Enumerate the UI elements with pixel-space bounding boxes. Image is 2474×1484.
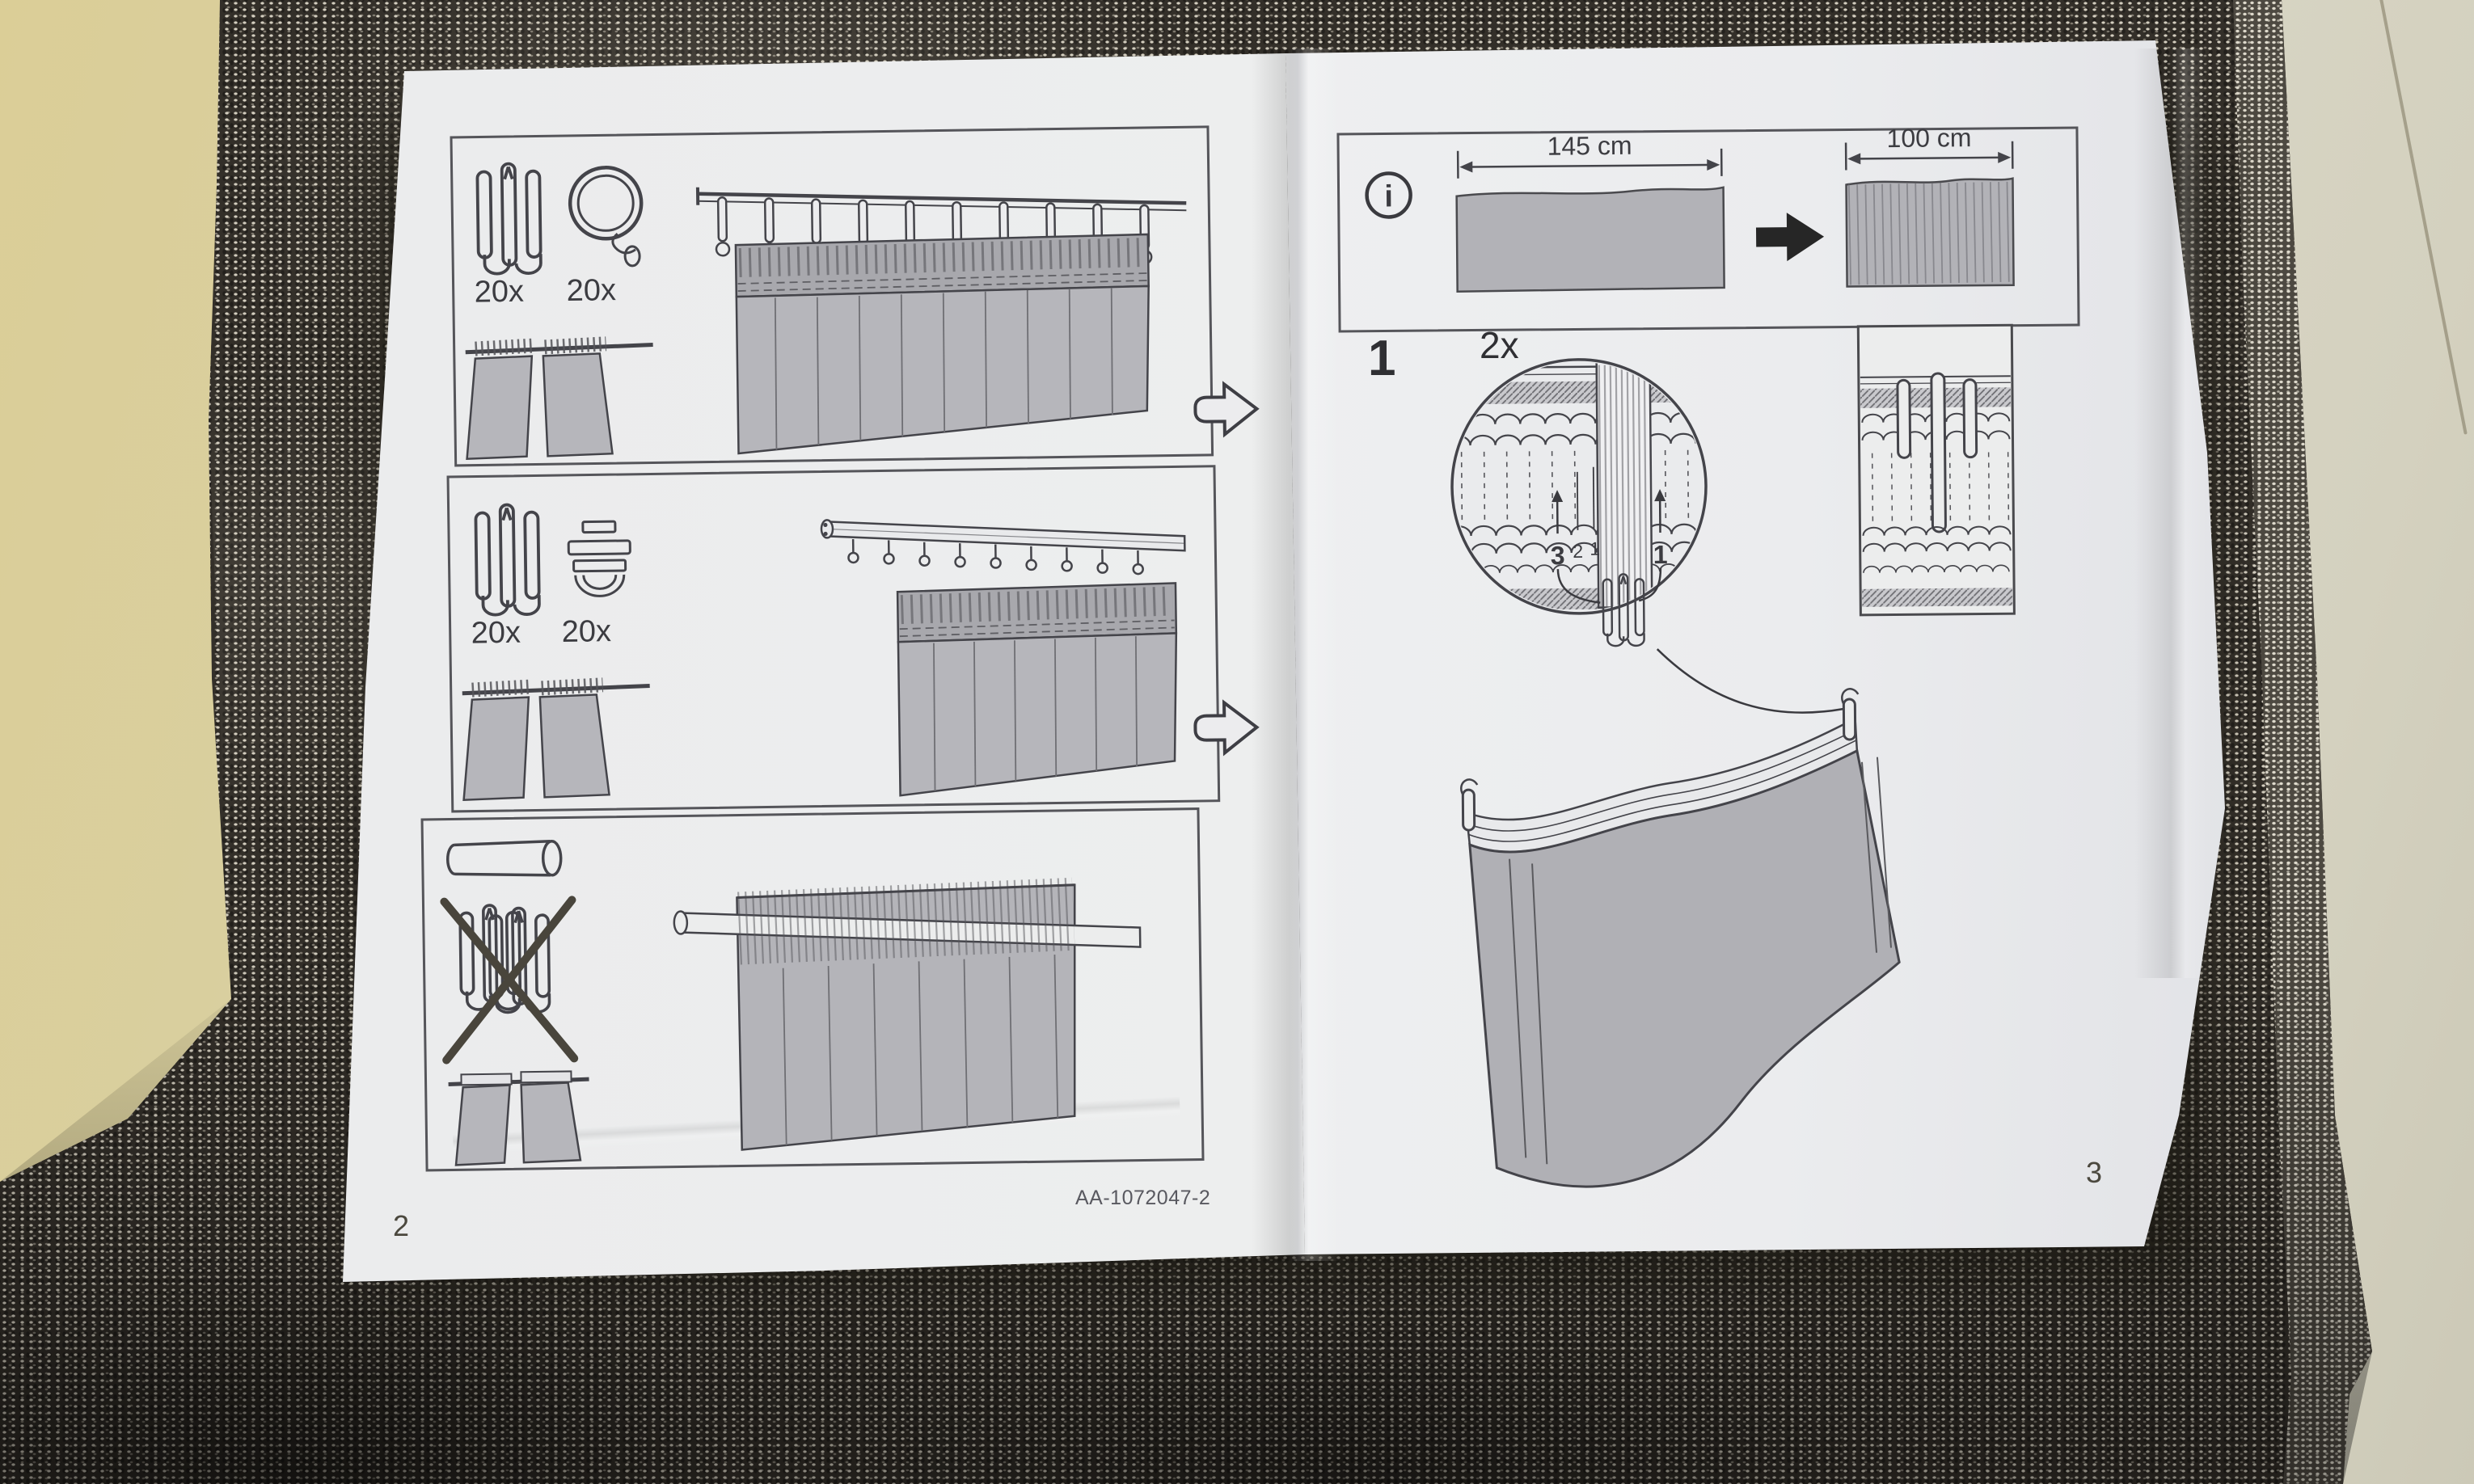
rod-with-rings-diagram: [698, 180, 1190, 453]
pocket-label-2: 2: [1573, 541, 1583, 562]
mini-curtains-rod-pocket: [448, 1071, 590, 1165]
inserted-hook: [1898, 380, 1910, 457]
panel-hang-with-gliders: 20x 20x: [446, 465, 1221, 813]
step1-diagram: 3 2 1 1: [1329, 141, 2179, 1199]
hook-qty-label: 20x: [471, 616, 521, 651]
photo-scene: 20x 20x: [0, 0, 2474, 1484]
page-number-right: 3: [2086, 1156, 2102, 1190]
panel-hang-with-rings: 20x 20x: [450, 125, 1214, 467]
no-pleat-hook-icon: [444, 900, 574, 1060]
next-step-arrow-icon: [1187, 701, 1260, 774]
curtain-rod-icon: [447, 841, 561, 877]
curtain-hook-left: [1463, 790, 1474, 830]
track-glider-icon: [568, 521, 631, 597]
pocket-label-3: 3: [1551, 541, 1565, 570]
pocket-label-right-1: 1: [1653, 540, 1668, 569]
curtain-ring-clip-icon: [570, 167, 643, 267]
hook-qty-label: 20x: [474, 275, 524, 310]
pocket-label-1: 1: [1590, 538, 1600, 559]
curtain-with-hooks: [1460, 689, 1901, 1188]
glider-qty-label: 20x: [561, 614, 611, 649]
next-step-arrow-icon: [1187, 382, 1260, 456]
pleat-hook-icon: [475, 504, 539, 615]
leader-line: [1657, 647, 1844, 714]
page-number-left: 2: [393, 1209, 409, 1243]
tape-magnifier-detail: 3 2 1 1: [1445, 358, 1714, 626]
mini-curtains: [466, 344, 655, 459]
mini-curtains: [462, 685, 652, 800]
rod-pocket-curtain-diagram: [673, 884, 1142, 1151]
pleat-hook-icon: [477, 163, 541, 274]
document-code: AA-1072047-2: [1075, 1187, 1210, 1210]
ring-qty-label: 20x: [566, 273, 616, 308]
curtain-hook-right: [1843, 699, 1855, 740]
panel-rod-pocket: [420, 807, 1205, 1172]
tape-detail-box: [1858, 325, 2014, 615]
track-with-gliders-diagram: [821, 515, 1188, 796]
